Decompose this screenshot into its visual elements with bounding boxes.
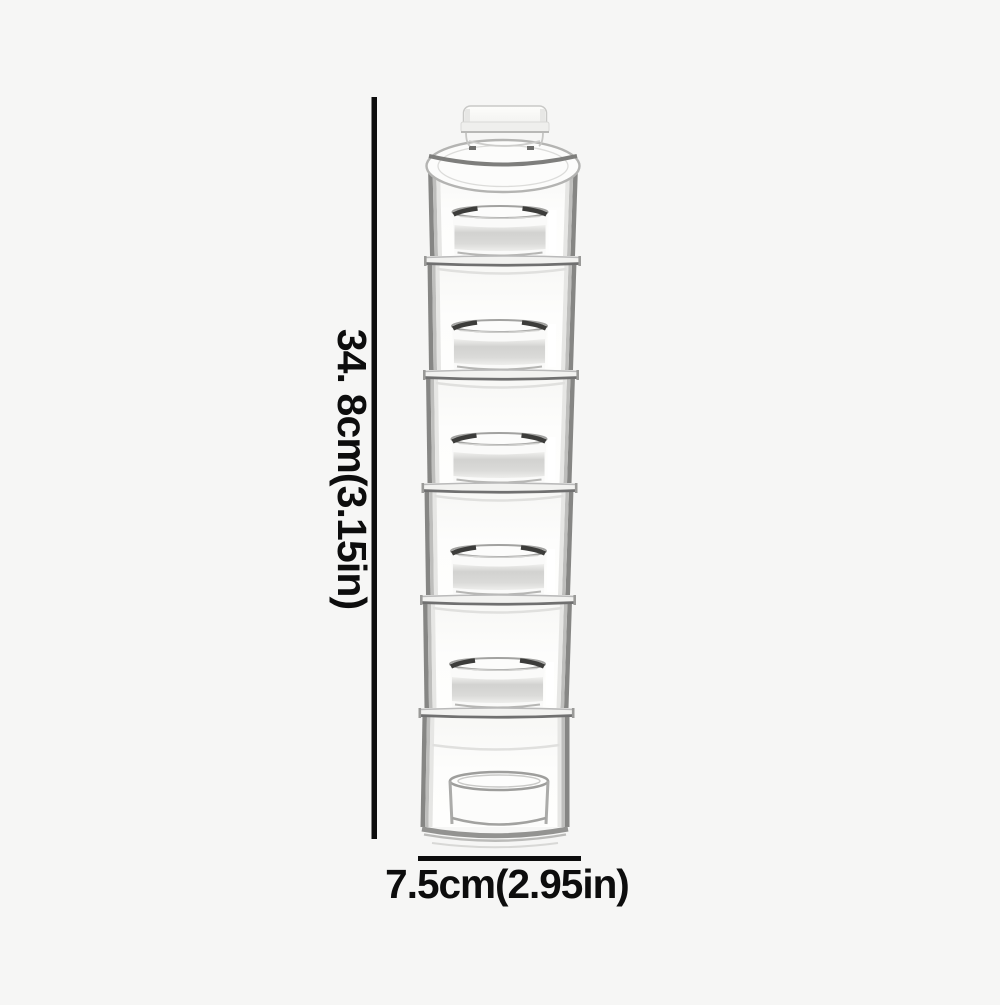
- svg-text:34. 8cm(3.15in): 34. 8cm(3.15in): [329, 329, 375, 610]
- svg-text:7.5cm(2.95in): 7.5cm(2.95in): [385, 861, 629, 907]
